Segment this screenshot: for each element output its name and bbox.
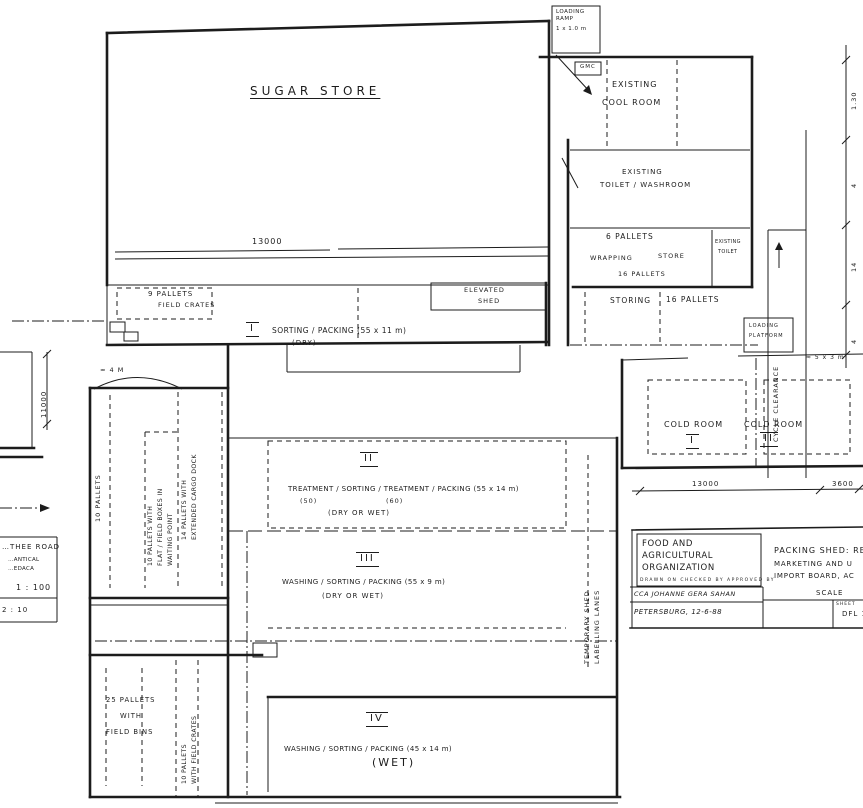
pallets-10-crates-label: 10 PALLETS WITH FIELD CRATES bbox=[180, 716, 200, 784]
pallets-25-line1: 25 PALLETS bbox=[106, 692, 155, 708]
small-toilet-line2: TOILET bbox=[718, 249, 737, 255]
loading-ramp-line3: 1 x 1.0 m bbox=[556, 26, 587, 33]
org-line2: AGRICULTURAL bbox=[642, 550, 715, 562]
sheet-value: DFL 1 bbox=[842, 610, 863, 619]
toilet-washroom-line2: TOILET / WASHROOM bbox=[600, 181, 691, 190]
section-3-text: WASHING / SORTING / PACKING (55 x 9 m) bbox=[282, 578, 445, 587]
section-4-mode: (WET) bbox=[372, 756, 415, 770]
left-tb-scale: 1 : 100 bbox=[16, 583, 51, 593]
small-toilet-line1: EXISTING bbox=[715, 239, 741, 245]
wrapping-label: WRAPPING bbox=[590, 254, 633, 262]
temporary-shed-line1: TEMPORARY SHED bbox=[582, 590, 592, 664]
section-2-mode: (DRY OR WET) bbox=[328, 509, 390, 518]
pallets-10-fruit-line3: WAITING POINT bbox=[166, 488, 176, 566]
cool-room-line1: EXISTING bbox=[612, 80, 657, 90]
temporary-shed-label: TEMPORARY SHED LABELLING LANES bbox=[582, 590, 602, 664]
left-tb-line3: …EDACA bbox=[8, 566, 34, 573]
project-line3: IMPORT BOARD, AC bbox=[774, 572, 855, 581]
org-name: FOOD AND AGRICULTURAL ORGANIZATION bbox=[642, 538, 715, 574]
gmc-box-label: GMC bbox=[580, 64, 596, 71]
pallets-14-line2: EXTENDED CARGO DOCK bbox=[190, 454, 200, 540]
pallets-10-fruit-label: 10 PALLETS WITH FLAT / FIELD BOXES IN WA… bbox=[146, 488, 176, 566]
section-1-sub: (DRY) bbox=[292, 339, 317, 348]
org-line3: ORGANIZATION bbox=[642, 562, 715, 574]
storing-pallets-label: 16 PALLETS bbox=[666, 295, 720, 304]
section-3-mode: (DRY OR WET) bbox=[322, 592, 384, 601]
dim-note-5x3: ≈ 5 x 3 m bbox=[806, 354, 845, 362]
project-line2: MARKETING AND U bbox=[774, 560, 853, 569]
pallets-25-line3: FIELD BINS bbox=[106, 724, 155, 740]
dim-cold-b: 3600 bbox=[832, 480, 854, 489]
cold-room-building bbox=[622, 354, 863, 495]
right-dim-2: 4 bbox=[850, 183, 858, 188]
project-line1: PACKING SHED: RE bbox=[774, 546, 863, 556]
section-4-numeral: IV bbox=[366, 712, 388, 727]
pallets-9-line2: FIELD CRATES bbox=[158, 301, 215, 309]
section-3-numeral: III bbox=[356, 552, 379, 567]
loading-ramp-line1: LOADING bbox=[556, 9, 587, 16]
dimension-top: 13000 bbox=[252, 237, 282, 247]
pallets-9-line1: 9 PALLETS bbox=[148, 290, 193, 299]
cold-room-1-numeral: I bbox=[686, 434, 699, 449]
pallets-6-label: 6 PALLETS bbox=[606, 232, 654, 241]
byline: CCA JOHANNE GERA SAHAN bbox=[634, 590, 736, 598]
cycle-clearance-label: CYCLE CLEARANCE bbox=[772, 366, 780, 442]
pallets-16-label: 16 PALLETS bbox=[618, 270, 666, 278]
dimension-left: 11000 bbox=[40, 391, 49, 418]
pallets-10-fruit-line1: 10 PALLETS WITH bbox=[146, 488, 156, 566]
dim-cold-a: 13000 bbox=[692, 480, 719, 489]
org-line1: FOOD AND bbox=[642, 538, 715, 550]
sheet-label: SHEET bbox=[836, 602, 856, 608]
loading-platform-line2: PLATFORM bbox=[749, 333, 784, 339]
section-2-sub2: (60) bbox=[386, 497, 403, 505]
cool-room-line2: COOL ROOM bbox=[602, 98, 661, 108]
storing-label: STORING bbox=[610, 296, 651, 305]
date-line: PETERSBURG, 12-6-88 bbox=[634, 608, 722, 617]
pallets-10-crates-line1: 10 PALLETS bbox=[180, 716, 190, 784]
right-dim-1: 1.30 bbox=[850, 92, 858, 110]
section-2-text: TREATMENT / SORTING / TREATMENT / PACKIN… bbox=[288, 485, 519, 494]
section-1-text: SORTING / PACKING (55 x 11 m) bbox=[272, 326, 406, 335]
loading-platform-line1: LOADING bbox=[749, 323, 779, 329]
cold-room-1-name: COLD ROOM bbox=[664, 420, 723, 430]
temporary-shed-line2: LABELLING LANES bbox=[592, 590, 602, 664]
section-2-numeral: II bbox=[360, 452, 378, 467]
cold-room-2-numeral: II bbox=[760, 432, 778, 447]
toilet-washroom-line1: EXISTING bbox=[622, 168, 663, 177]
elevated-shed-line1: ELEVATED bbox=[464, 286, 505, 294]
store-label: STORE bbox=[658, 252, 685, 260]
section-1-numeral: I bbox=[246, 322, 259, 337]
left-tb-line5: 2 : 10 bbox=[2, 606, 28, 615]
right-dim-4: 4 bbox=[850, 339, 858, 344]
packing-shed-floor-plan: SUGAR STORE 13000 LOADING RAMP 1 x 1.0 m… bbox=[0, 0, 863, 808]
scale-label: SCALE bbox=[816, 589, 843, 598]
plan-linework bbox=[0, 0, 863, 808]
pallets-10-label: 10 PALLETS bbox=[94, 474, 102, 522]
sugar-store-label: SUGAR STORE bbox=[250, 84, 380, 99]
loading-ramp-label: LOADING RAMP 1 x 1.0 m bbox=[556, 9, 587, 33]
pallets-25-line2: WITH bbox=[106, 708, 155, 724]
elevated-shed-line2: SHED bbox=[478, 297, 500, 305]
right-dimension-chain bbox=[842, 45, 850, 368]
pallets-10-crates-line2: WITH FIELD CRATES bbox=[190, 716, 200, 784]
left-tb-line2: …ANTICAL bbox=[8, 557, 39, 564]
section-4-text: WASHING / SORTING / PACKING (45 x 14 m) bbox=[284, 745, 452, 754]
cold-room-2-name: COLD ROOM bbox=[744, 420, 803, 430]
left-tb-line1: …THEE ROAD bbox=[2, 543, 60, 552]
loading-ramp-line2: RAMP bbox=[556, 16, 587, 23]
section-2-sub1: (50) bbox=[300, 497, 317, 505]
right-dim-3: 14 bbox=[850, 262, 858, 272]
pallets-25-label: 25 PALLETS WITH FIELD BINS bbox=[106, 692, 155, 740]
pallets-14-label: 14 PALLETS WITH EXTENDED CARGO DOCK bbox=[180, 454, 200, 540]
arc-height-note: ≈ 4 M bbox=[100, 366, 124, 374]
pallets-10-fruit-line2: FLAT / FIELD BOXES IN bbox=[156, 488, 166, 566]
pallets-14-line1: 14 PALLETS WITH bbox=[180, 454, 190, 540]
byline-header: DRAWN ON CHECKED BY APPROVED BY bbox=[640, 578, 775, 584]
